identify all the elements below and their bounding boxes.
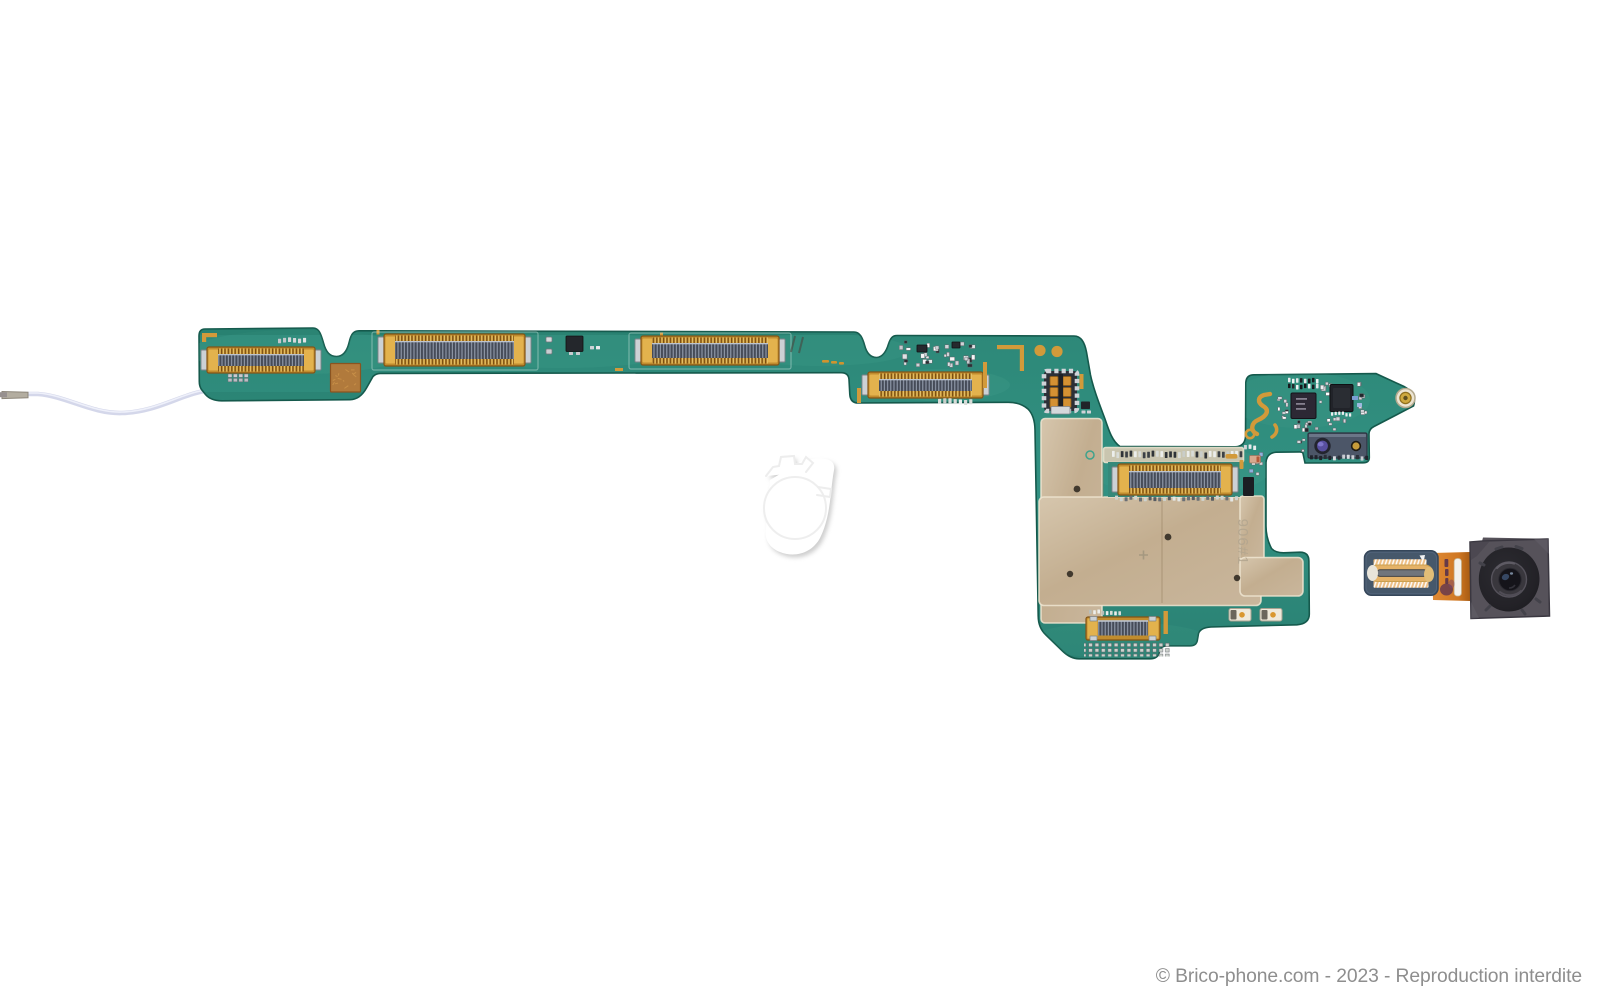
svg-text:906#1: 906#1 [1234, 519, 1251, 566]
svg-text:© Brico-phone.com - 2023 - Rep: © Brico-phone.com - 2023 - Reproduction … [1156, 966, 1582, 987]
